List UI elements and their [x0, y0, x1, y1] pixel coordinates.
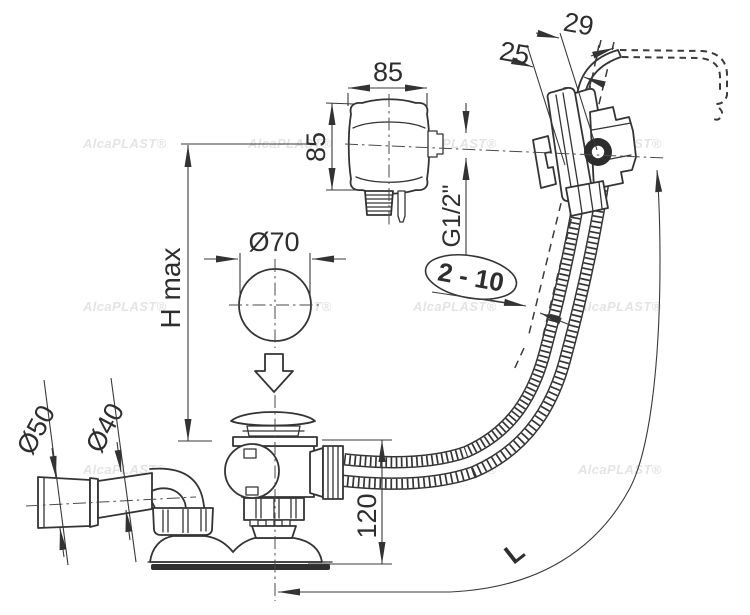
watermark: AlcaPLAST® — [412, 299, 497, 314]
waste-base-gasket — [151, 564, 330, 570]
dim-label-120: 120 — [352, 493, 382, 538]
hose-cone-adapter — [310, 448, 323, 497]
socket-50 — [38, 477, 90, 528]
watermark: AlcaPLAST® — [577, 462, 662, 477]
drain-plug — [231, 412, 315, 426]
dim-label-d50: Ø50 — [11, 400, 61, 459]
dim-label-d70: Ø70 — [248, 227, 299, 257]
technical-drawing-page: AlcaPLAST® AlcaPLAST® AlcaPLAST® AlcaPLA… — [0, 0, 750, 615]
knob-cable-outlet — [428, 131, 443, 157]
watermark: AlcaPLAST® — [82, 136, 167, 151]
technical-drawing-canvas: AlcaPLAST® AlcaPLAST® AlcaPLAST® AlcaPLA… — [0, 0, 750, 615]
corrugated-hose — [343, 172, 594, 473]
elbow-bend — [150, 469, 205, 512]
dim-label-d40: Ø40 — [80, 398, 130, 457]
dim-label-knob-height: 85 — [301, 132, 331, 162]
bathtub-rim-dashed — [620, 50, 727, 120]
dim-label-hose-length: L — [499, 536, 530, 570]
dim-label-thread: G1/2" — [438, 184, 466, 247]
watermark: AlcaPLAST® — [577, 299, 662, 314]
down-block-arrow — [255, 354, 293, 392]
dim-label-h-max: H max — [155, 248, 186, 329]
knob-pin — [398, 191, 405, 222]
dim-label-rim-29: 29 — [561, 7, 596, 42]
dim-line-hose-length — [278, 170, 660, 592]
plug-top-view-circle — [229, 259, 321, 392]
overflow-fitting — [533, 45, 636, 216]
dim-label-rim-25: 25 — [497, 36, 532, 71]
outlet-elbow-pipe — [26, 469, 213, 535]
waste-base-skirt — [150, 536, 322, 562]
watermark: AlcaPLAST® — [82, 299, 167, 314]
dim-label-knob-width: 85 — [373, 57, 403, 87]
overflow-clamp-bracket — [533, 136, 556, 188]
